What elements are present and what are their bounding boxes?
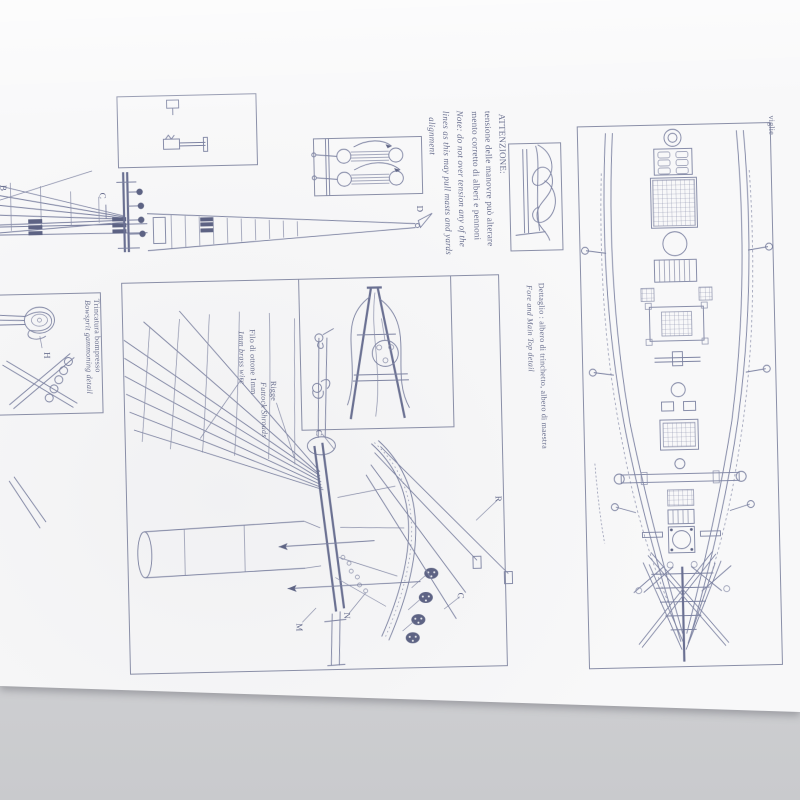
caution-line: ATTENZIONE: (497, 114, 508, 174)
futtock-caption-en: Futtock Shrouds (259, 382, 269, 438)
stray-lines (5, 470, 54, 533)
part-label-d: D (415, 205, 425, 212)
detail-caption-en: Fore and Main Top detail (525, 285, 536, 372)
photo-of-plan-sheet: ATTENZIONE: tensione delle manovre può a… (0, 0, 800, 800)
part-label-n: N (342, 612, 352, 619)
gammoning-caption-it: Trincatura bompresso (92, 299, 103, 373)
heart-block (0, 307, 55, 341)
rope-knot-box (508, 142, 564, 253)
wire-caption-it: Filo di ottone 1mm (248, 329, 258, 394)
futtock-caption-it: Rigge (269, 381, 278, 401)
part-label-c-lower: C (456, 593, 466, 599)
part-label-m: M (294, 623, 304, 631)
lower-mast (137, 521, 321, 578)
part-label-c-top: C (314, 430, 324, 436)
detail-caption-it: Dettaglio : albero di trinchetto, albero… (537, 283, 550, 449)
wire-caption-en: 1mm brass wire (237, 330, 247, 384)
deck-plan-box (575, 119, 787, 671)
masthead-blocks (128, 189, 146, 238)
shroud-netting (123, 308, 323, 494)
edge-caption-fragment: viglie (767, 115, 776, 135)
doubling-detail (310, 287, 409, 420)
rim-deadeyes (401, 568, 440, 644)
fitting-detail-box (116, 93, 258, 168)
printed-plan-layer: ATTENZIONE: tensione delle manovre può a… (0, 0, 800, 800)
caution-line: Note: do not over tension any of the (455, 110, 468, 247)
paper-sheet: ATTENZIONE: tensione delle manovre può a… (0, 0, 800, 800)
part-label-r: R (494, 496, 504, 502)
caution-line: lines as this may pull masts and yards (441, 111, 454, 255)
top-detail-box (119, 274, 512, 679)
caution-line: mento corretto di alberi e pennoni (470, 111, 483, 240)
caution-line: tensione delle manovre può alterare (483, 111, 496, 247)
bow-structure (633, 551, 733, 663)
part-label-b: B (0, 185, 9, 191)
mast-profile-drawing (0, 157, 434, 279)
gammoning-lashing (2, 353, 77, 409)
caution-line: alignment (427, 117, 438, 155)
deck-fittings (606, 128, 748, 554)
part-label-h: H (42, 352, 52, 359)
part-label-c-mast: C (98, 193, 108, 199)
